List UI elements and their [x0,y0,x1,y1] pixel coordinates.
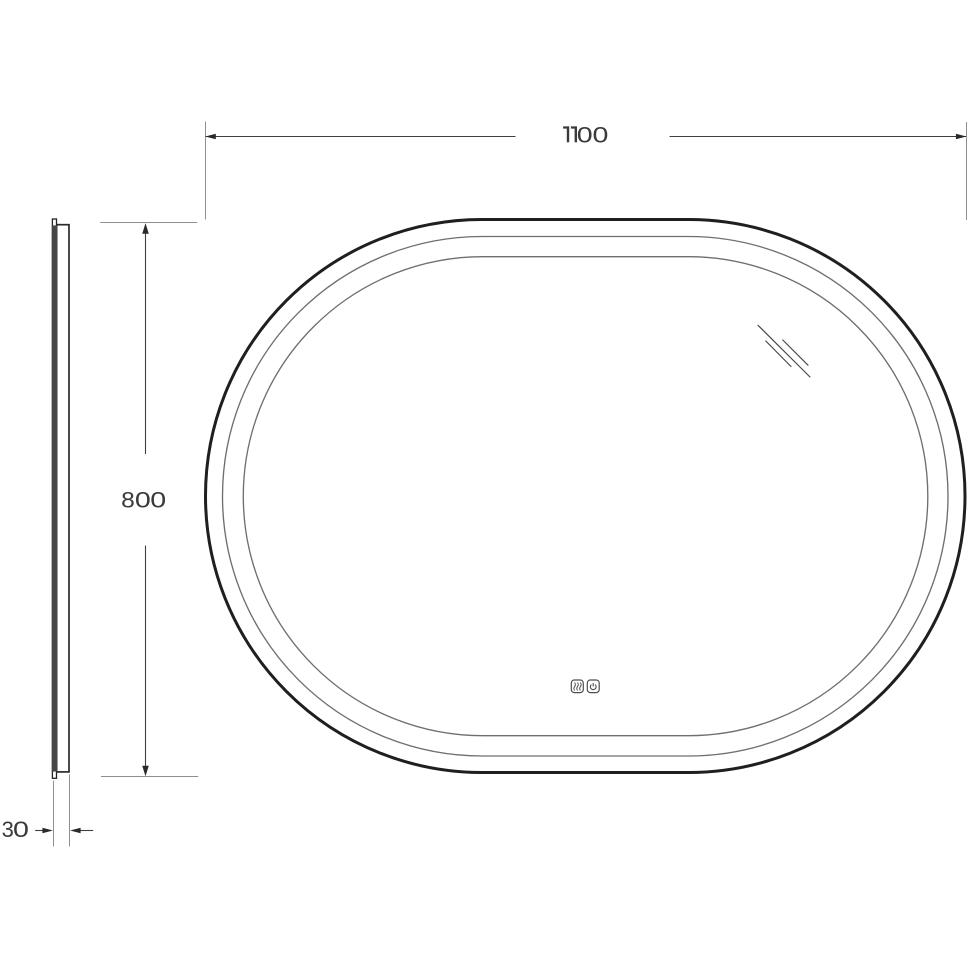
svg-text:0: 0 [150,488,166,512]
svg-text:8: 8 [121,488,135,512]
svg-text:0: 0 [13,818,29,842]
svg-text:0: 0 [593,123,609,147]
svg-text:0: 0 [577,123,593,147]
svg-text:0: 0 [135,488,151,512]
